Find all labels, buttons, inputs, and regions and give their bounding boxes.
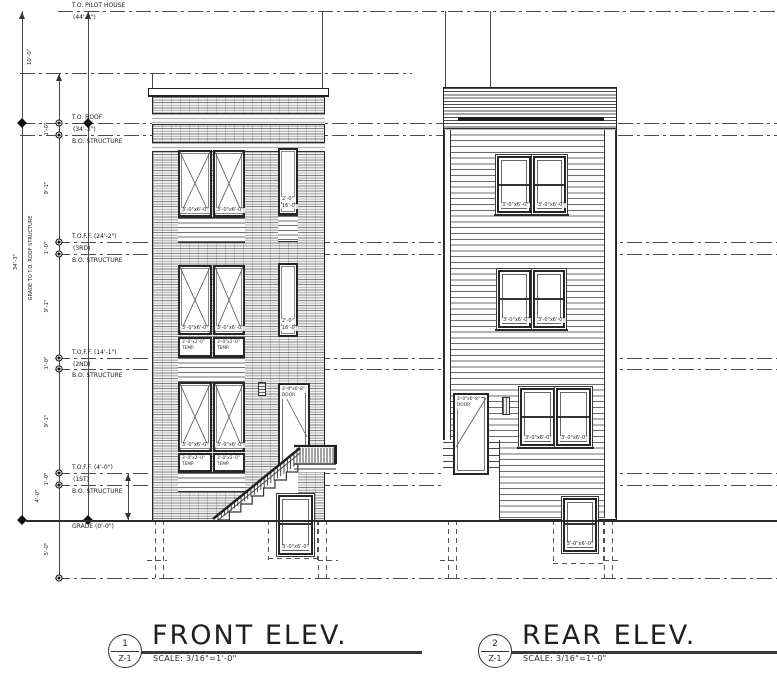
- level-name: B.O. STRUCTURE: [72, 488, 123, 495]
- datum-line: [20, 73, 412, 74]
- stair-railing-icon: [210, 440, 338, 522]
- front-spandrel-panel: [178, 357, 245, 383]
- dimension-text: 5'-0": [42, 529, 52, 569]
- meeting-rail: [499, 184, 529, 186]
- front-light-fixture-icon: [258, 382, 266, 396]
- drawing-canvas: T.O. PILOT HOUSE(44'-3")T.O. ROOF(34'-3"…: [0, 0, 777, 676]
- dimension-text: 1'-0": [42, 109, 52, 149]
- foundation-dashed-line: [163, 520, 164, 578]
- window-width-label: 2'-0": [281, 197, 295, 203]
- window-size-label: 3'-0"x6'-0": [216, 326, 245, 332]
- front-detail-bubble: 1 Z-1: [108, 634, 142, 668]
- rear-detail-bubble: 2 Z-1: [478, 634, 512, 668]
- front-spandrel-panel: [178, 217, 245, 243]
- foundation-dashed-line: [326, 520, 327, 578]
- window-x-glazing-icon: [180, 152, 210, 215]
- foundation-dashed-line: [553, 563, 605, 564]
- tempered-glass-label: TEMP.: [181, 346, 195, 352]
- window-sill: [494, 214, 534, 216]
- foundation-dashed-line: [604, 560, 622, 561]
- double-hung-window: 3'-0"x6'-0": [520, 388, 555, 446]
- level-marker: [56, 239, 63, 246]
- tempered-transom-window: 3'-0"x2'-0"TEMP.: [178, 337, 212, 357]
- dimension-text: 1'-0": [42, 228, 52, 268]
- foundation-dashed-line: [448, 520, 449, 578]
- extension-line: [88, 11, 89, 520]
- meeting-rail: [565, 523, 595, 525]
- window-size-label: 3'-0"x6'-0": [181, 443, 210, 449]
- dimension-text: GRADE TO T.O. ROOF STRUCTURE: [26, 193, 36, 323]
- front-stoop-stairs: [210, 440, 338, 522]
- foundation-dashed-line: [268, 558, 318, 559]
- window-size-label: 3'-0"x6'-0": [566, 542, 595, 548]
- casement-window: 3'-0"x6'-0": [178, 265, 212, 335]
- datum-line: [58, 11, 777, 12]
- window-size-label: 3'-0"x2'-0": [181, 456, 206, 462]
- foundation-dashed-line: [317, 520, 318, 560]
- dimension-arrow: [56, 74, 62, 81]
- casement-window: 3'-0"x6'-0": [178, 382, 212, 452]
- window-width-label: 2'-0": [281, 319, 295, 325]
- dimension-text: 34'-3": [11, 242, 21, 282]
- window-height-label: 16'-0": [281, 204, 298, 210]
- window-size-label: 3'-0"x6'-0": [281, 545, 310, 551]
- window-sill: [530, 329, 568, 331]
- rear-title-block: 2 Z-1 REAR ELEV. SCALE: 3/16"=1'-0": [478, 624, 777, 674]
- foundation-dashed-line: [456, 520, 457, 578]
- bubble-divider: [481, 651, 509, 652]
- level-name: T.O.F.F. (24'-2"): [72, 233, 117, 240]
- foundation-dashed-line: [268, 520, 269, 560]
- door-label: DOOR: [281, 393, 296, 399]
- rear-parapet-cap: [458, 117, 604, 121]
- rear-detail-number: 2: [479, 639, 511, 649]
- double-hung-window: 3'-0"x6'-0": [533, 270, 565, 328]
- extension-line: [490, 11, 491, 87]
- rear-light-fixture-icon: [502, 397, 510, 415]
- rear-elevation-title: REAR ELEV.: [522, 620, 696, 651]
- dimension-arrow: [125, 474, 131, 481]
- dimension-text: 9'-1": [42, 168, 52, 208]
- meeting-rail: [500, 298, 529, 300]
- meeting-rail: [535, 298, 563, 300]
- front-sheet-ref: Z-1: [109, 654, 141, 663]
- dimension-text: 9'-1": [42, 401, 52, 441]
- level-marker: [56, 482, 63, 489]
- tempered-glass-label: TEMP.: [216, 346, 230, 352]
- level-name: B.O. STRUCTURE: [72, 257, 123, 264]
- dimension-text: 4'-0": [33, 476, 43, 516]
- door-size-label: 3'-0"x6'-8": [456, 397, 481, 403]
- casement-window: 3'-0"x6'-0": [213, 265, 245, 335]
- dimension-text: 1'-0": [42, 343, 52, 383]
- tall-slot-window: 2'-0"16'-0": [278, 148, 298, 215]
- window-sill: [517, 447, 558, 449]
- extension-line: [322, 11, 323, 88]
- foundation-dashed-line: [155, 520, 156, 578]
- level-marker: [56, 251, 63, 258]
- front-string-course: [152, 113, 325, 125]
- rear-parapet-base-line: [444, 128, 616, 129]
- level-name: T.O.F.F. (14'-1"): [72, 349, 117, 356]
- meeting-rail: [558, 416, 589, 418]
- window-sill: [495, 329, 534, 331]
- tempered-transom-window: 3'-0"x2'-0"TEMP.: [178, 453, 212, 472]
- level-elevation: (34'-3"): [73, 126, 96, 133]
- window-size-label: 3'-0"x6'-0": [560, 436, 589, 442]
- door-size-label: 3'-0"x6'-8": [281, 387, 306, 393]
- extension-line: [59, 73, 60, 578]
- front-detail-number: 1: [109, 639, 141, 649]
- rear-corner-trim-right: [604, 130, 616, 518]
- elevation-drawing-sheet: T.O. PILOT HOUSE(44'-3")T.O. ROOF(34'-3"…: [0, 0, 777, 676]
- rear-parapet: [444, 88, 616, 128]
- foundation-dashed-line: [318, 520, 319, 578]
- foundation-dashed-line: [603, 520, 604, 565]
- level-name: T.O. PILOT HOUSE: [72, 2, 125, 9]
- window-size-label: 3'-0"x2'-0": [216, 340, 241, 346]
- datum-line: [20, 123, 777, 124]
- front-elevation-title: FRONT ELEV.: [152, 620, 348, 651]
- level-name: T.O.F.F. (4'-0"): [72, 464, 113, 471]
- basement-window: 3'-0"x6'-0": [278, 495, 313, 555]
- dimension-text: 9'-1": [42, 286, 52, 326]
- basement-window: 3'-0"x6'-0": [563, 498, 597, 552]
- dimension-arrow: [85, 12, 91, 19]
- meeting-rail: [535, 184, 564, 186]
- casement-window: 3'-0"x6'-0": [178, 150, 212, 217]
- dimension-arrow: [125, 513, 131, 520]
- datum-line: [20, 135, 777, 136]
- window-height-label: 16'-0": [281, 326, 298, 332]
- window-size-label: 3'-0"x6'-0": [216, 208, 245, 214]
- window-size-label: 3'-0"x6'-0": [181, 208, 210, 214]
- rear-sheet-ref: Z-1: [479, 654, 511, 663]
- foundation-dashed-line: [318, 560, 338, 561]
- bubble-divider: [111, 651, 139, 652]
- window-x-glazing-icon: [215, 152, 243, 215]
- meeting-rail: [522, 416, 553, 418]
- level-marker: [56, 366, 63, 373]
- datum-diamond-marker: [17, 118, 27, 128]
- front-spandrel-panel: [278, 215, 298, 242]
- dimension-arrow: [19, 12, 25, 19]
- window-sill: [530, 214, 569, 216]
- dimension-text: 10'-0": [25, 37, 35, 77]
- window-x-glazing-icon: [180, 384, 210, 450]
- extension-line: [22, 11, 23, 520]
- window-x-glazing-icon: [180, 267, 210, 333]
- tall-slot-window: 2'-0"16'-0": [278, 263, 298, 337]
- level-marker: [56, 120, 63, 127]
- front-parapet-coping: [148, 88, 329, 97]
- datum-line: [55, 578, 777, 579]
- extension-line: [445, 11, 446, 87]
- level-marker: [56, 575, 63, 582]
- level-name: GRADE (0'-0"): [72, 523, 114, 530]
- double-hung-window: 3'-0"x6'-0": [497, 156, 531, 213]
- front-scale-note: SCALE: 3/16"=1'-0": [153, 654, 237, 663]
- tempered-glass-label: TEMP.: [181, 462, 195, 468]
- window-size-label: 3'-0"x2'-0": [181, 340, 206, 346]
- double-hung-window: 3'-0"x6'-0": [498, 270, 531, 328]
- window-size-label: 3'-0"x6'-0": [501, 203, 530, 209]
- foundation-dashed-line: [604, 520, 605, 578]
- casement-window: 3'-0"x6'-0": [213, 150, 245, 217]
- window-size-label: 3'-0"x6'-0": [502, 318, 531, 324]
- grade-line: [26, 520, 777, 522]
- level-marker: [56, 132, 63, 139]
- double-hung-window: 3'-0"x6'-0": [556, 388, 591, 446]
- front-title-block: 1 Z-1 FRONT ELEV. SCALE: 3/16"=1'-0": [108, 624, 420, 674]
- level-name: B.O. STRUCTURE: [72, 138, 123, 145]
- level-marker: [56, 470, 63, 477]
- foundation-dashed-line: [553, 520, 554, 565]
- level-elevation: (1ST): [73, 476, 89, 483]
- rear-scale-note: SCALE: 3/16"=1'-0": [523, 654, 607, 663]
- foundation-dashed-line: [612, 520, 613, 578]
- tempered-transom-window: 3'-0"x2'-0"TEMP.: [213, 337, 245, 357]
- window-size-label: 3'-0"x6'-0": [537, 203, 566, 209]
- door-label: DOOR: [456, 403, 471, 409]
- entry-door: 3'-0"x6'-8"DOOR: [453, 393, 489, 475]
- foundation-dashed-line: [147, 560, 167, 561]
- meeting-rail: [280, 523, 311, 525]
- dimension-text: 1'-0": [42, 459, 52, 499]
- window-size-label: 3'-0"x6'-0": [181, 326, 210, 332]
- level-name: B.O. STRUCTURE: [72, 372, 123, 379]
- level-elevation: (3RD): [73, 245, 90, 252]
- double-hung-window: 3'-0"x6'-0": [533, 156, 566, 213]
- foundation-dashed-line: [440, 560, 458, 561]
- window-sill: [553, 447, 594, 449]
- window-x-glazing-icon: [215, 267, 243, 333]
- window-size-label: 3'-0"x6'-0": [524, 436, 553, 442]
- level-marker: [56, 355, 63, 362]
- level-elevation: (2ND): [73, 361, 91, 368]
- window-size-label: 3'-0"x6'-0": [537, 318, 566, 324]
